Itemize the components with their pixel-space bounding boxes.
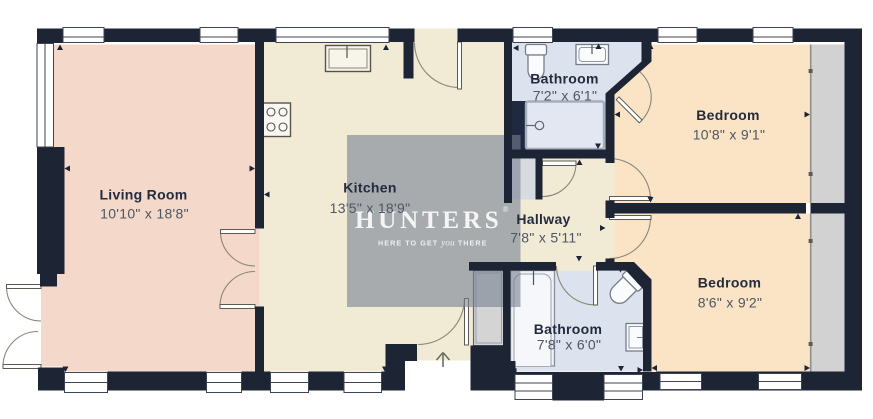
svg-text:10'10" x 18'8": 10'10" x 18'8" [100,206,189,222]
svg-text:Bathroom: Bathroom [530,71,599,87]
svg-text:7'2" x 6'1": 7'2" x 6'1" [533,88,598,104]
svg-text:Living Room: Living Room [99,187,187,203]
svg-text:HERE TO GET you THERE: HERE TO GET you THERE [378,238,487,248]
svg-text:13'5" x 18'9": 13'5" x 18'9" [330,200,411,216]
svg-text:7'8" x 5'11": 7'8" x 5'11" [510,230,582,246]
svg-text:Bedroom: Bedroom [696,107,760,123]
svg-text:Kitchen: Kitchen [343,180,396,196]
svg-text:®: ® [503,205,509,214]
svg-text:Bathroom: Bathroom [534,321,603,337]
svg-text:Hallway: Hallway [516,211,570,227]
svg-text:7'8" x 6'0": 7'8" x 6'0" [537,337,602,353]
svg-text:Bedroom: Bedroom [698,275,762,291]
svg-text:10'8" x 9'1": 10'8" x 9'1" [693,127,766,143]
svg-text:8'6" x 9'2": 8'6" x 9'2" [698,295,763,311]
